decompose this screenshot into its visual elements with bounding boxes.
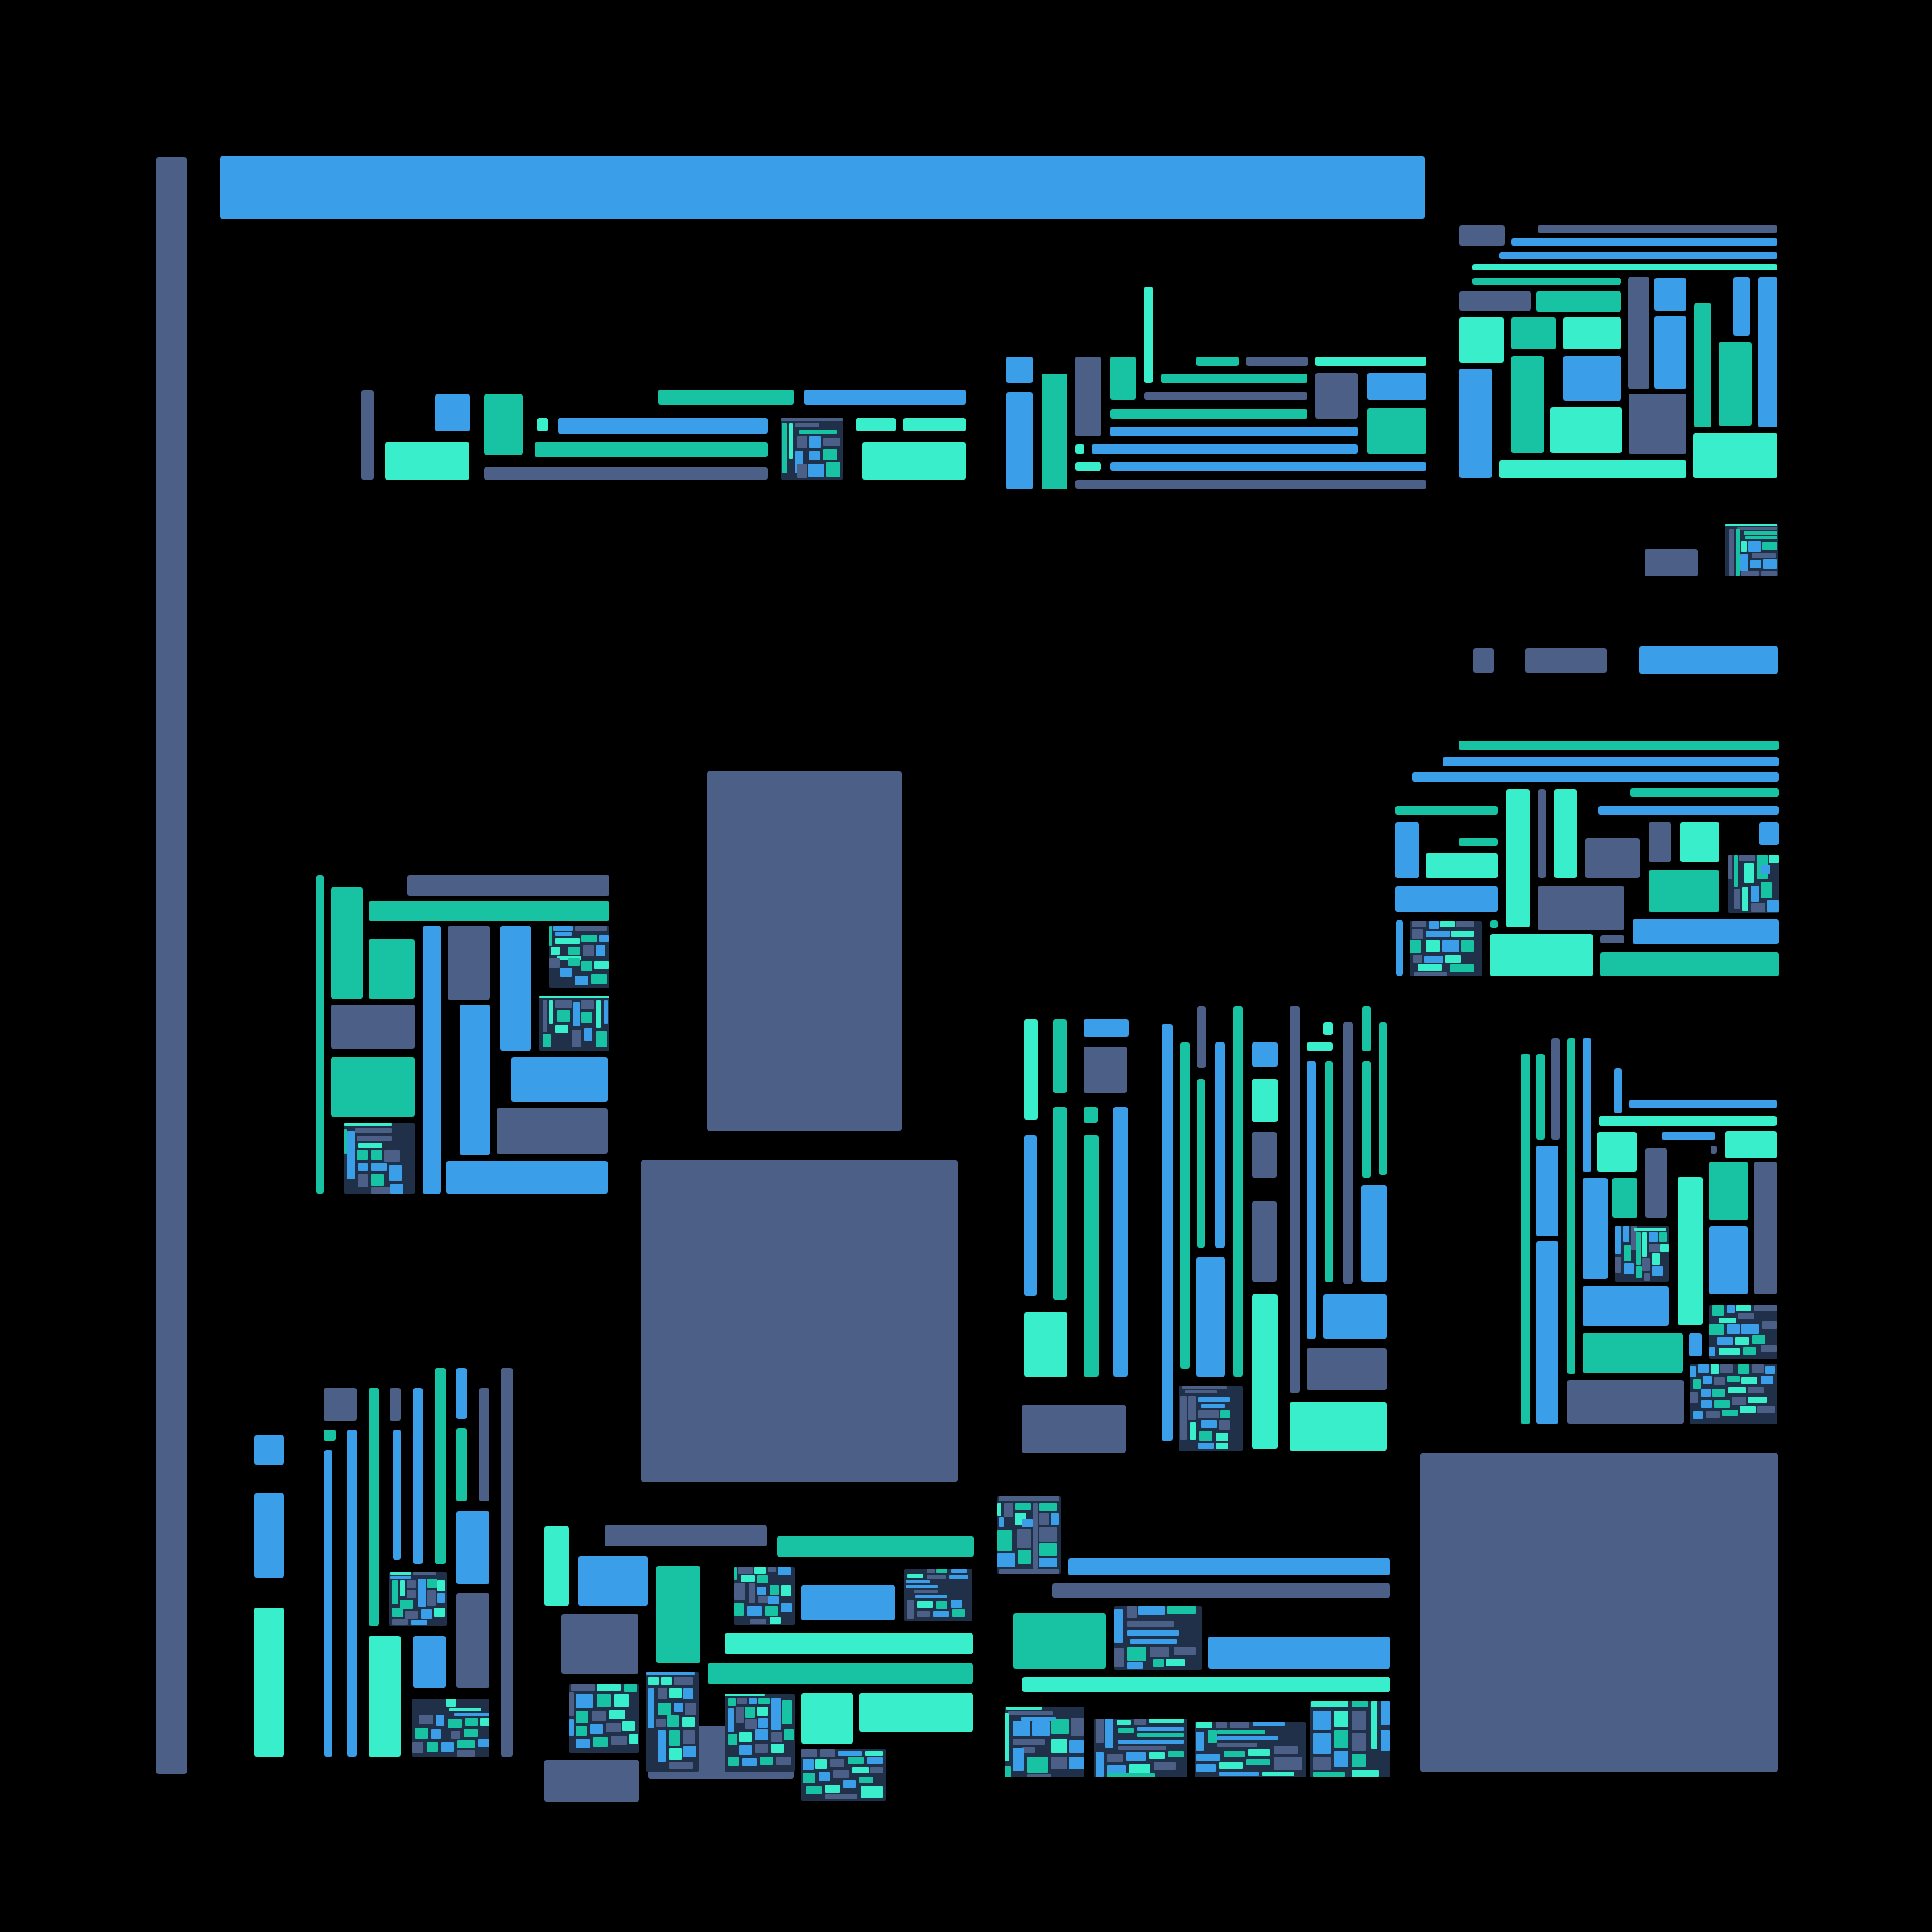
treemap-tile: [951, 1569, 967, 1573]
treemap-block: [1252, 1132, 1277, 1178]
treemap-tile: [799, 430, 837, 434]
treemap-tile: [1114, 1648, 1124, 1667]
treemap-tile: [1334, 1730, 1348, 1748]
treemap-tile: [1461, 940, 1474, 952]
treemap-block: [1709, 1226, 1748, 1294]
treemap-block: [1680, 822, 1719, 862]
treemap-block: [1013, 1613, 1106, 1669]
treemap-tile: [555, 1025, 568, 1033]
treemap-tile: [448, 1719, 462, 1728]
treemap-block: [1307, 1348, 1387, 1390]
treemap-block: [1053, 1107, 1067, 1300]
treemap-mosaic: [646, 1672, 699, 1772]
treemap-block: [1252, 1042, 1278, 1067]
treemap-tile: [1624, 1263, 1634, 1274]
treemap-block: [156, 157, 187, 1774]
treemap-tile: [823, 449, 837, 460]
treemap-block: [484, 467, 768, 480]
treemap-tile: [576, 1694, 593, 1708]
treemap-block: [1551, 1038, 1560, 1140]
treemap-tile: [806, 1786, 822, 1794]
treemap-tile: [1381, 1730, 1390, 1751]
treemap-block: [903, 418, 966, 431]
treemap-tile: [1757, 1406, 1775, 1413]
treemap-tile: [1071, 1718, 1084, 1736]
treemap-tile: [1118, 1728, 1134, 1733]
treemap-tile: [1748, 541, 1761, 552]
treemap-tile: [747, 1606, 762, 1616]
treemap-tile: [1174, 1647, 1196, 1655]
treemap-block: [1052, 1583, 1390, 1598]
treemap-tile: [436, 1715, 444, 1726]
treemap-tile: [418, 1579, 426, 1607]
treemap-tile: [1167, 1606, 1196, 1614]
treemap-tile: [1615, 1257, 1621, 1273]
treemap-block: [1536, 291, 1621, 312]
treemap-block: [1396, 920, 1403, 976]
treemap-block: [1649, 822, 1671, 862]
treemap-tile: [1032, 1721, 1050, 1736]
treemap-tile: [674, 1703, 683, 1712]
treemap-tile: [1246, 1759, 1270, 1765]
treemap-block: [331, 1057, 415, 1117]
treemap-tile: [1752, 1335, 1765, 1344]
treemap-block: [1290, 1402, 1387, 1451]
treemap-tile: [758, 1698, 770, 1704]
treemap-tile: [669, 1688, 682, 1698]
treemap-tile: [815, 1759, 827, 1769]
treemap-tile: [1096, 1719, 1104, 1743]
treemap-block: [1215, 1042, 1225, 1248]
treemap-tile: [465, 1718, 478, 1726]
treemap-block: [1162, 1024, 1173, 1441]
treemap-tile: [569, 1692, 574, 1716]
treemap-tile: [781, 1603, 792, 1612]
treemap-block: [1197, 1079, 1205, 1248]
treemap-tile: [555, 938, 580, 944]
treemap-tile: [917, 1611, 930, 1617]
treemap-tile: [1371, 1701, 1377, 1749]
treemap-tile: [1154, 1762, 1176, 1770]
treemap-tile: [745, 1707, 755, 1718]
treemap-tile: [758, 1718, 768, 1728]
treemap-tile: [1313, 1772, 1345, 1777]
treemap-mosaic: [569, 1684, 639, 1753]
treemap-tile: [390, 1184, 403, 1194]
treemap-tile: [1150, 1647, 1169, 1657]
treemap-block: [456, 1368, 467, 1419]
treemap-block: [1075, 480, 1426, 489]
treemap-tile: [936, 1601, 947, 1609]
treemap-tile: [1274, 1746, 1298, 1754]
treemap-block: [1343, 1022, 1353, 1284]
treemap-block: [1110, 409, 1307, 419]
treemap-tile: [1740, 554, 1748, 571]
treemap-block: [1379, 1022, 1387, 1175]
treemap-block: [361, 390, 374, 480]
treemap-block: [561, 1614, 638, 1674]
treemap-tile: [951, 1600, 962, 1608]
treemap-block: [1068, 1558, 1390, 1575]
treemap-tile: [737, 1698, 747, 1704]
treemap-tile: [782, 1700, 792, 1724]
treemap-tile: [389, 1165, 402, 1181]
treemap-tile: [1735, 1337, 1749, 1345]
treemap-block: [435, 1368, 446, 1564]
treemap-tile: [757, 1587, 766, 1595]
treemap-tile: [1216, 1443, 1228, 1449]
treemap-tile: [949, 1575, 968, 1579]
treemap-tile: [952, 1609, 965, 1617]
treemap-block: [1197, 1006, 1206, 1068]
treemap-block: [1630, 788, 1779, 797]
treemap-block: [1583, 1178, 1608, 1279]
treemap-block: [1654, 278, 1686, 311]
treemap-tile: [1642, 1258, 1650, 1271]
treemap-tile: [629, 1734, 638, 1744]
treemap-tile: [739, 1745, 752, 1755]
treemap-tile: [1636, 1266, 1642, 1278]
treemap-tile: [734, 1603, 744, 1616]
treemap-block: [1022, 1405, 1126, 1453]
treemap-tile: [437, 1580, 445, 1591]
treemap-block: [1567, 1038, 1575, 1374]
treemap-block: [1725, 1131, 1777, 1158]
treemap-block: [1689, 1333, 1702, 1356]
treemap-tile: [1734, 855, 1738, 887]
treemap-tile: [1693, 1379, 1701, 1389]
treemap-tile: [427, 1590, 436, 1606]
treemap-block: [1633, 919, 1779, 944]
treemap-tile: [1690, 1392, 1698, 1403]
treemap-tile: [661, 1677, 672, 1685]
treemap-block: [1084, 1019, 1129, 1037]
treemap-mosaic: [1728, 855, 1779, 913]
treemap-tile: [658, 1688, 667, 1699]
treemap-block: [1538, 789, 1546, 878]
treemap-tile: [997, 1503, 1001, 1516]
treemap-block: [1567, 1380, 1684, 1424]
treemap-tile: [1334, 1751, 1348, 1767]
treemap-tile: [1017, 1529, 1031, 1548]
treemap-block: [1754, 1162, 1777, 1294]
treemap-tile: [415, 1728, 428, 1739]
treemap-block: [1362, 1061, 1371, 1178]
treemap-tile: [596, 945, 605, 956]
treemap-tile: [347, 1131, 355, 1179]
treemap-tile: [760, 1757, 773, 1765]
treemap-mosaic: [1709, 1305, 1777, 1359]
treemap-tile: [576, 1711, 588, 1723]
treemap-tile: [784, 1729, 794, 1740]
treemap-block: [708, 1663, 973, 1684]
treemap-tile: [1216, 1433, 1228, 1441]
treemap-tile: [808, 464, 824, 477]
treemap-tile: [770, 1617, 781, 1624]
treemap-tile: [801, 1749, 817, 1757]
treemap-tile: [1769, 855, 1779, 863]
treemap-block: [484, 394, 523, 455]
treemap-tile: [1217, 1730, 1265, 1734]
treemap-tile: [1126, 1752, 1146, 1761]
treemap-block: [324, 1430, 336, 1441]
treemap-tile: [914, 1590, 938, 1593]
treemap-block: [1022, 1677, 1390, 1692]
treemap-block: [1694, 303, 1711, 427]
treemap-tile: [1005, 1766, 1011, 1777]
treemap-block: [1412, 772, 1779, 782]
treemap-tile: [778, 1567, 791, 1575]
treemap-block: [316, 875, 324, 1194]
treemap-tile: [1728, 855, 1732, 879]
treemap-tile: [1761, 1345, 1777, 1352]
treemap-tile: [648, 1677, 659, 1685]
treemap-tile: [590, 1724, 603, 1734]
treemap-tile: [1690, 1366, 1696, 1377]
treemap-tile: [596, 1000, 601, 1028]
treemap-tile: [1426, 931, 1450, 937]
treemap-tile: [1442, 940, 1459, 952]
treemap-block: [1511, 356, 1544, 453]
treemap-tile: [1127, 1662, 1143, 1669]
treemap-tile: [1013, 1721, 1030, 1736]
treemap-block: [1024, 1312, 1067, 1377]
treemap-tile: [437, 1593, 445, 1603]
treemap-tile: [1649, 1232, 1658, 1242]
treemap-block: [1758, 277, 1777, 427]
treemap-block: [1536, 1146, 1558, 1236]
treemap-tile: [838, 1751, 862, 1756]
treemap-tile: [683, 1730, 695, 1744]
treemap-tile: [848, 1757, 864, 1764]
treemap-tile: [1313, 1757, 1331, 1770]
treemap-tile: [357, 1136, 392, 1141]
treemap-tile: [1198, 1397, 1230, 1402]
treemap-tile: [1634, 1228, 1666, 1231]
treemap-tile: [1763, 559, 1777, 569]
treemap-tile: [782, 423, 787, 473]
treemap-block: [1459, 225, 1505, 246]
treemap-tile: [1018, 1550, 1031, 1564]
treemap-tile: [1456, 921, 1474, 927]
treemap-tile: [1107, 1773, 1155, 1777]
treemap-tile: [1636, 1232, 1641, 1265]
treemap-mosaic: [344, 1123, 415, 1194]
treemap-tile: [611, 1736, 627, 1745]
treemap-block: [1092, 444, 1358, 454]
treemap-block: [1361, 1185, 1387, 1282]
treemap-block: [1511, 238, 1777, 246]
treemap-tile: [1693, 1411, 1703, 1419]
treemap-tile: [371, 1163, 387, 1171]
treemap-tile: [927, 1575, 946, 1579]
treemap-tile: [658, 1703, 671, 1715]
treemap-tile: [1751, 885, 1759, 902]
treemap-mosaic: [539, 996, 609, 1051]
treemap-tile: [1751, 903, 1765, 912]
treemap-tile: [1185, 1390, 1217, 1393]
treemap-tile: [576, 1726, 587, 1736]
treemap-tile: [1196, 1732, 1204, 1751]
treemap-block: [1614, 1068, 1622, 1113]
treemap-block: [804, 390, 966, 405]
treemap-block: [1600, 952, 1779, 976]
treemap-mosaic: [412, 1699, 489, 1757]
treemap-tile: [865, 1751, 883, 1756]
treemap-tile: [1216, 1722, 1227, 1728]
treemap-block: [707, 771, 902, 1131]
treemap-block: [1612, 1178, 1637, 1218]
treemap-tile: [823, 438, 840, 446]
treemap-tile: [551, 947, 560, 955]
treemap-mosaic: [904, 1569, 972, 1621]
treemap-block: [1629, 1100, 1777, 1108]
treemap-tile: [431, 1729, 441, 1739]
treemap-tile: [1274, 1757, 1302, 1770]
treemap-tile: [1130, 1639, 1177, 1644]
treemap-tile: [572, 1030, 581, 1047]
treemap-tile: [427, 1742, 438, 1752]
treemap-tile: [736, 1707, 744, 1723]
treemap-tile: [392, 1619, 408, 1625]
treemap-block: [1233, 1006, 1243, 1377]
treemap-block: [578, 1556, 648, 1606]
treemap-block: [1042, 374, 1067, 489]
treemap-block: [1645, 549, 1698, 576]
treemap-tile: [421, 1609, 432, 1619]
treemap-block: [1649, 870, 1719, 912]
treemap-tile: [1134, 1719, 1146, 1725]
treemap-tile: [390, 1572, 411, 1575]
treemap-tile: [344, 1129, 347, 1154]
treemap-block: [1367, 408, 1426, 454]
treemap-block: [1084, 1135, 1099, 1377]
treemap-tile: [1429, 921, 1439, 929]
treemap-block: [1506, 789, 1529, 927]
treemap-tile: [819, 1772, 830, 1781]
treemap-tile: [1127, 1621, 1174, 1627]
treemap-block: [1654, 316, 1686, 389]
treemap-block: [369, 1636, 401, 1757]
treemap-tile: [1732, 1397, 1746, 1405]
treemap-block: [347, 1430, 357, 1757]
treemap-tile: [593, 1737, 608, 1747]
treemap-block: [535, 442, 768, 457]
treemap-tile: [1224, 1751, 1245, 1757]
treemap-tile: [1615, 1226, 1621, 1254]
treemap-block: [1711, 1146, 1717, 1154]
treemap-tile: [861, 1786, 883, 1798]
treemap-tile: [1039, 1543, 1057, 1556]
treemap-block: [393, 1430, 401, 1560]
treemap-tile: [1698, 1364, 1709, 1373]
treemap-block: [1075, 444, 1084, 454]
treemap-tile: [1709, 1347, 1715, 1356]
treemap-tile: [724, 1694, 765, 1696]
treemap-block: [1362, 1006, 1371, 1051]
treemap-block: [1490, 934, 1593, 976]
treemap-tile: [1714, 1400, 1730, 1408]
treemap-tile: [667, 1715, 679, 1727]
treemap-tile: [646, 1672, 695, 1675]
treemap-block: [1629, 394, 1686, 454]
treemap-tile: [371, 1174, 384, 1186]
treemap-tile: [1129, 1764, 1150, 1773]
treemap-tile: [999, 1496, 1059, 1501]
treemap-tile: [1198, 1443, 1214, 1449]
treemap-block: [777, 1536, 974, 1557]
treemap-tile: [1004, 1503, 1013, 1517]
treemap-block: [456, 1511, 489, 1584]
treemap-block: [1459, 838, 1498, 846]
treemap-tile: [734, 1583, 745, 1600]
treemap-tile: [789, 423, 793, 459]
treemap-block: [1024, 1019, 1038, 1120]
treemap-tile: [1137, 1733, 1184, 1737]
treemap-mosaic: [389, 1572, 447, 1626]
treemap-block: [544, 1760, 639, 1802]
treemap-tile: [1114, 1609, 1123, 1643]
treemap-tile: [826, 462, 840, 477]
treemap-block: [1536, 1054, 1545, 1140]
treemap-mosaic: [1690, 1364, 1777, 1424]
treemap-block: [558, 418, 768, 434]
treemap-tile: [734, 1567, 737, 1580]
treemap-block: [254, 1608, 284, 1757]
treemap-block: [1315, 357, 1426, 366]
treemap-tile: [1767, 900, 1779, 912]
treemap-tile: [446, 1699, 456, 1707]
treemap-tile: [1741, 1324, 1759, 1334]
treemap-tile: [614, 1694, 629, 1707]
treemap-tile: [1412, 929, 1423, 939]
treemap-tile: [1719, 1348, 1740, 1355]
treemap-tile: [1198, 1410, 1219, 1418]
treemap-tile: [1182, 1386, 1227, 1389]
treemap-tile: [454, 1713, 489, 1716]
treemap-tile: [1188, 1396, 1196, 1420]
treemap-tile: [1738, 1364, 1749, 1374]
treemap-block: [1144, 287, 1153, 383]
treemap-tile: [573, 1002, 580, 1026]
treemap-block: [1180, 1042, 1190, 1368]
treemap-tile: [358, 1143, 382, 1148]
treemap-block: [1323, 1022, 1333, 1035]
treemap-tile: [480, 1718, 489, 1726]
treemap-tile: [539, 996, 609, 998]
treemap-tile: [739, 1732, 752, 1742]
treemap-block: [1538, 886, 1624, 930]
treemap-tile: [427, 1579, 437, 1588]
treemap-tile: [569, 1719, 574, 1736]
treemap-tile: [1752, 1364, 1764, 1373]
treemap-tile: [478, 1739, 489, 1747]
treemap-tile: [357, 1150, 368, 1160]
treemap-tile: [1201, 1420, 1217, 1428]
treemap-tile: [1659, 1232, 1667, 1242]
treemap-tile: [1334, 1711, 1348, 1727]
treemap-tile: [1445, 955, 1461, 963]
treemap-tile: [825, 1785, 840, 1793]
treemap-tile: [553, 926, 573, 931]
treemap-block: [1459, 369, 1492, 478]
treemap-block: [1075, 462, 1101, 471]
treemap-tile: [390, 1576, 411, 1579]
treemap-tile: [683, 1688, 693, 1699]
treemap-tile: [683, 1746, 696, 1757]
treemap-mosaic: [801, 1749, 886, 1801]
treemap-tile: [936, 1569, 947, 1573]
